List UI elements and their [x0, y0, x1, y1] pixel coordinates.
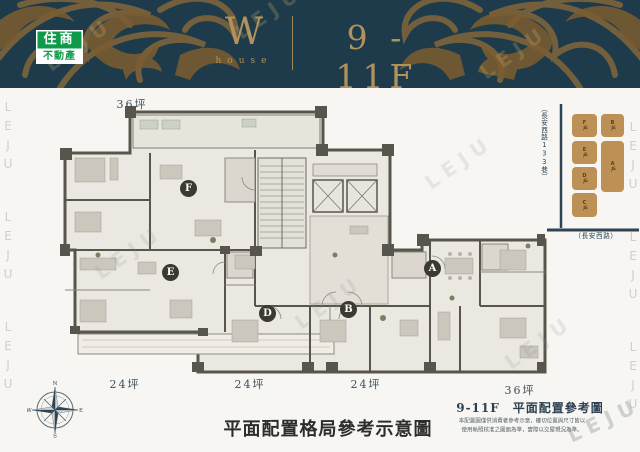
- keymap-box-b-label: B戶: [609, 120, 617, 132]
- watermark-column-right: LEJU LEJU LEJU: [626, 120, 640, 416]
- compass-e: E: [79, 408, 83, 414]
- area-label-bottom-3: 24坪: [336, 376, 396, 392]
- area-label-bottom-4: 36坪: [490, 382, 550, 398]
- keymap-box-b: B戶: [601, 114, 624, 137]
- unit-badge-d: D: [259, 305, 276, 322]
- keymap-box-e: E戶: [572, 141, 597, 164]
- watermark-column-left: LEJU LEJU LEJU: [1, 100, 15, 396]
- keymap-box-d: D戶: [572, 167, 597, 190]
- keymap-box-f-label: F戶: [581, 120, 589, 132]
- keymap-box-c-label: C戶: [581, 199, 589, 211]
- keymap-box-f: F戶: [572, 114, 597, 137]
- area-label-top: 36坪: [102, 96, 162, 112]
- unit-badge-f: F: [180, 180, 197, 197]
- watermark: LEJU: [1, 320, 15, 396]
- compass-n: N: [53, 381, 58, 387]
- keymap-box-a: A戶: [601, 141, 624, 192]
- watermark: LEJU: [1, 100, 15, 176]
- keymap-box-c: C戶: [572, 193, 597, 217]
- unit-badge-a: A: [424, 260, 441, 277]
- area-label-bottom-2: 24坪: [220, 376, 280, 392]
- watermark: LEJU: [626, 120, 640, 196]
- compass-s: S: [53, 434, 57, 439]
- unit-badge-e: E: [162, 264, 179, 281]
- watermark: LEJU: [626, 230, 640, 306]
- keymap-box-d-label: D戶: [581, 173, 589, 185]
- area-label-bottom-1: 24坪: [95, 376, 155, 392]
- keymap-box-a-label: A戶: [609, 161, 617, 173]
- keymap-lane-label: （長安西路133巷）: [539, 105, 549, 225]
- watermark: LEJU: [1, 210, 15, 286]
- keymap-box-e-label: E戶: [581, 147, 589, 159]
- floorplan-poster: W house 9 - 11F LEJU LEJU LEJU 住商 不動產: [0, 0, 640, 452]
- compass-w: W: [27, 408, 32, 414]
- calligraphy-title: 平面配置格局參考示意圖: [222, 415, 434, 441]
- compass-rose: N E S W: [27, 380, 83, 438]
